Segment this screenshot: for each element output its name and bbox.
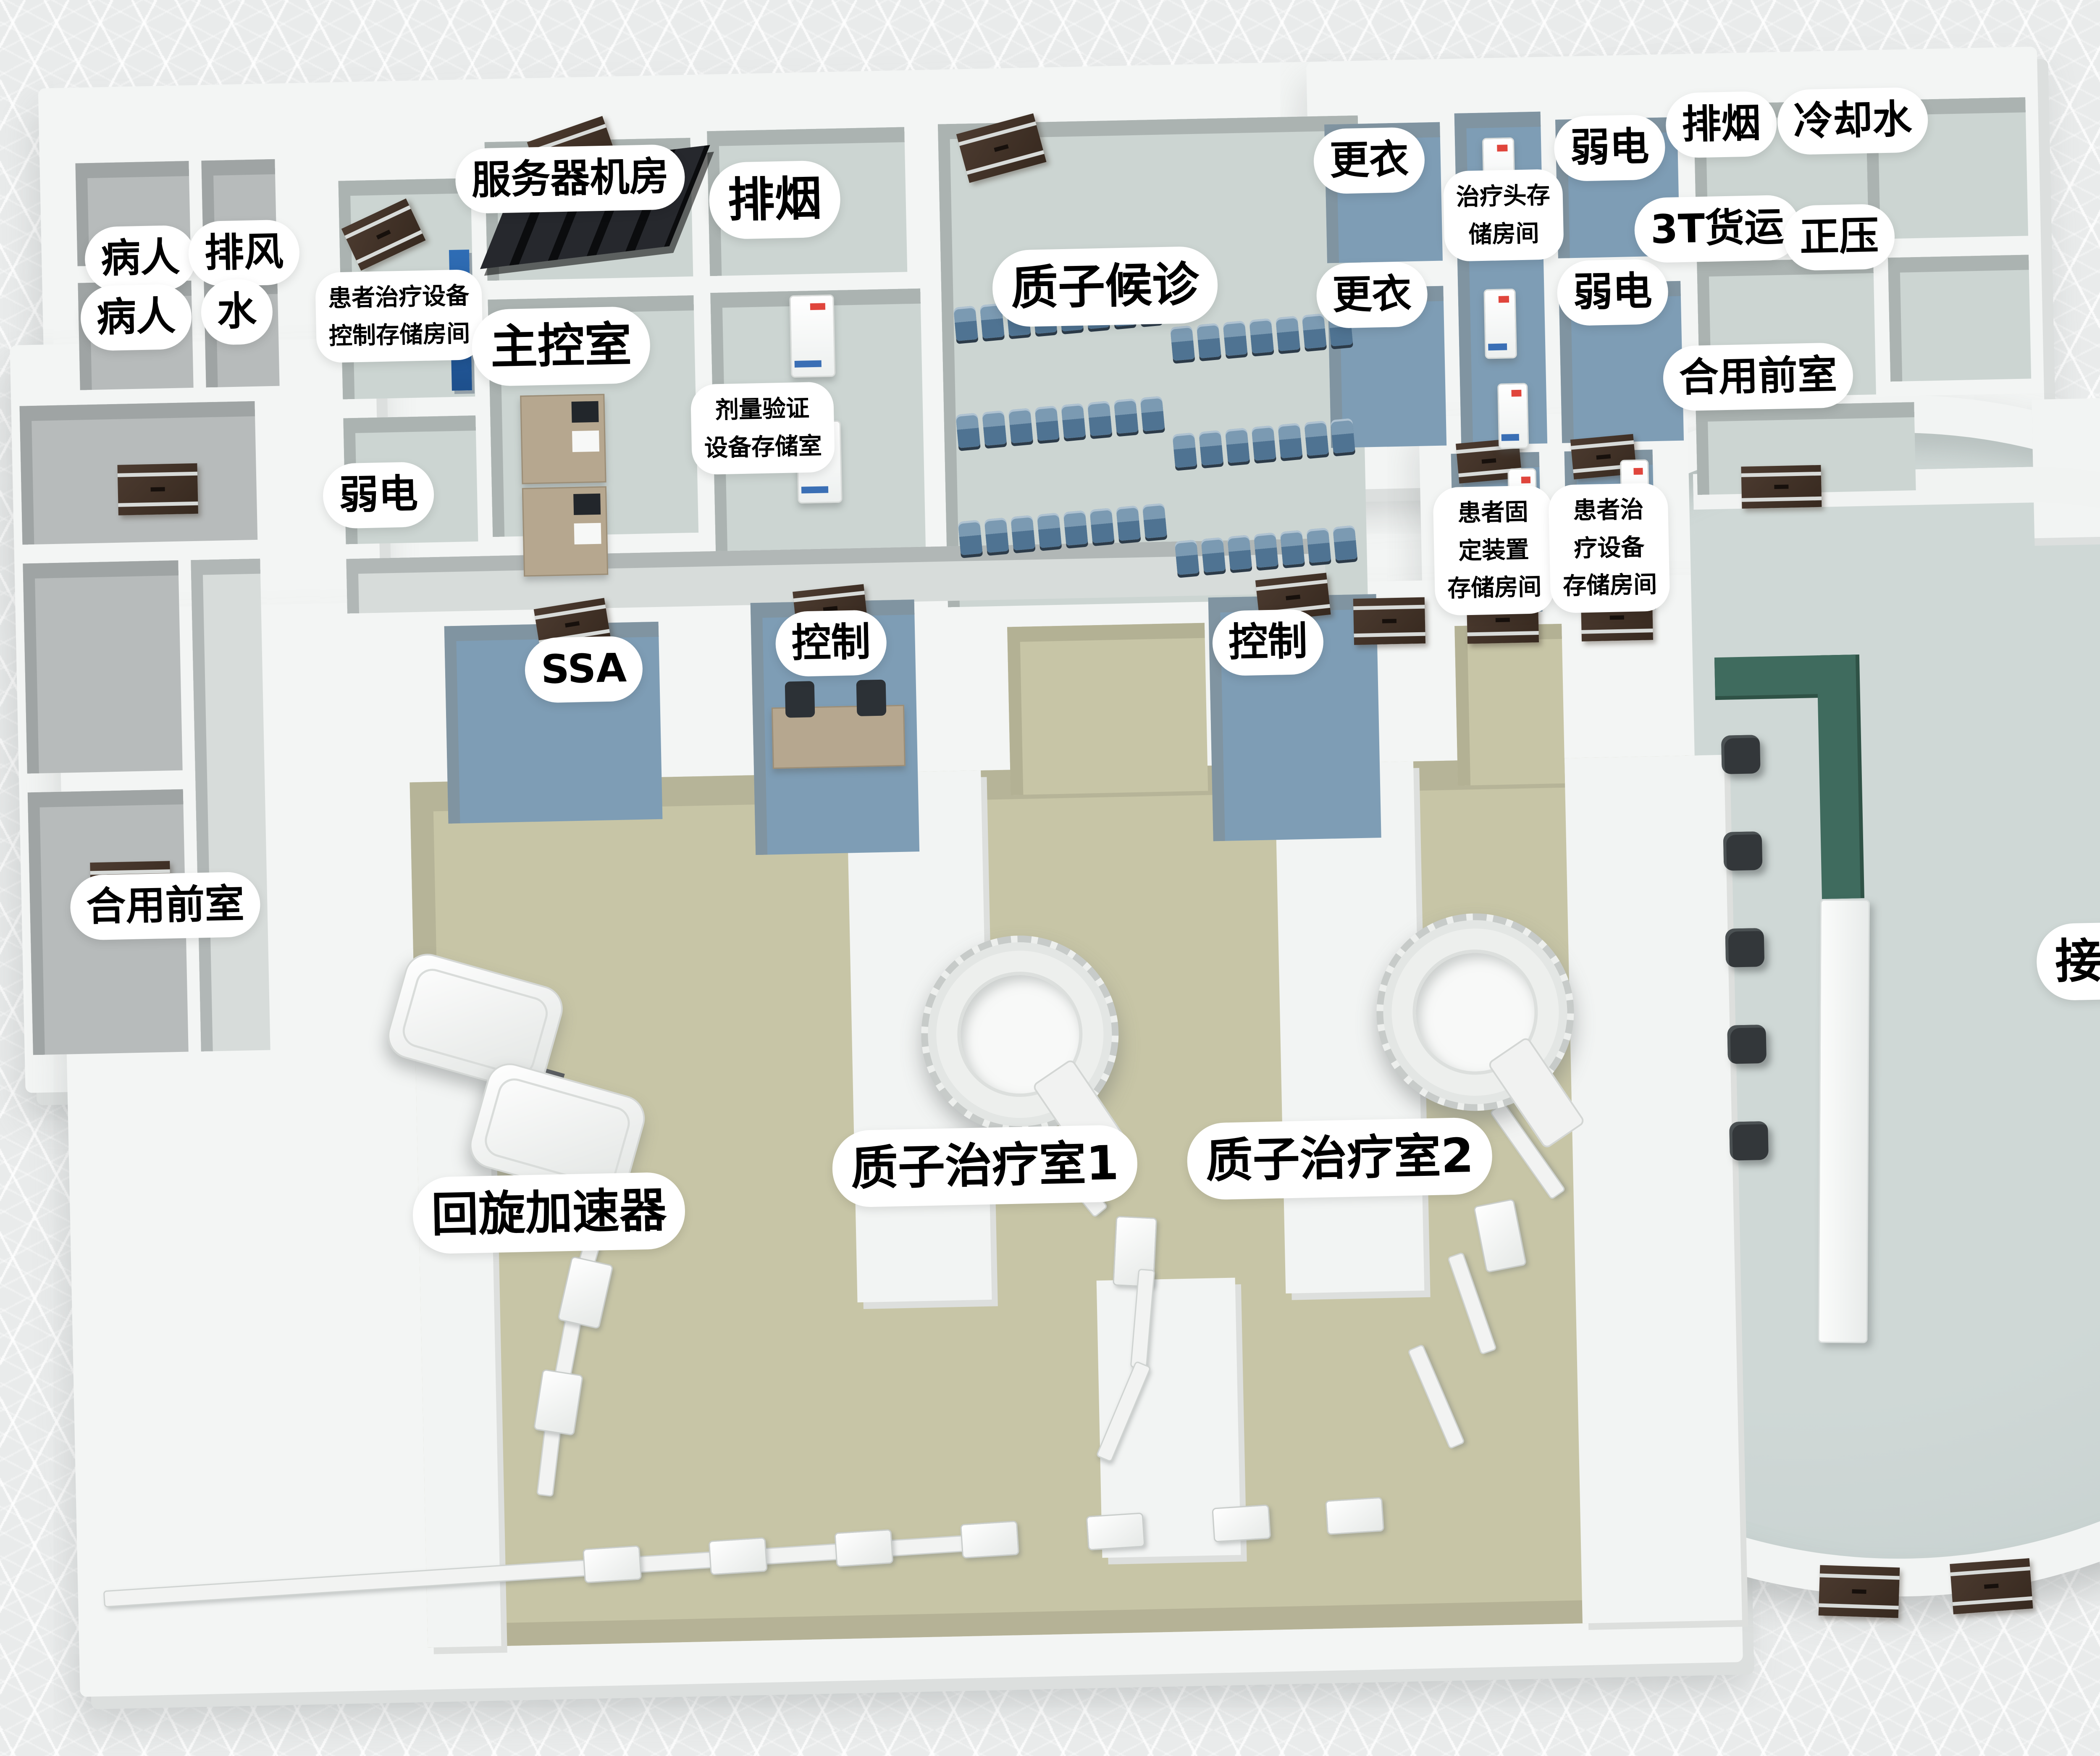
waiting-chair (1333, 525, 1357, 560)
lobby-inner-curved-wall (1693, 459, 2100, 978)
label-proton-waiting: 质子候诊 (992, 246, 1218, 327)
door (1741, 465, 1822, 509)
waiting-chair (1249, 318, 1274, 353)
beamline-segment (1086, 1512, 1145, 1551)
waiting-chair (1223, 321, 1247, 356)
label-shared-anteroom-left: 合用前室 (70, 871, 261, 940)
floor-plan-scene: 病人排风病人水患者治疗设备 控制存储房间服务器机房排烟主控室弱电剂量验证 设备存… (0, 0, 2100, 1756)
lobby-chair (1727, 1025, 1767, 1064)
waiting-chair (1304, 421, 1329, 456)
lobby-chair (1725, 928, 1764, 967)
waiting-chair (1254, 532, 1278, 568)
waiting-chair (1140, 396, 1165, 431)
beamline-segment (709, 1537, 768, 1575)
door (117, 463, 198, 515)
waiting-chair (1142, 503, 1167, 538)
lobby-chair (1721, 735, 1761, 774)
waiting-chair (1172, 433, 1197, 468)
waiting-chair (1276, 316, 1300, 351)
label-changing-2: 更衣 (1316, 261, 1428, 329)
label-control-2: 控制 (1212, 609, 1324, 676)
label-water: 水 (200, 279, 273, 345)
waiting-chair (1225, 428, 1250, 463)
label-dose-verification-storage: 剂量验证 设备存储室 (690, 381, 835, 475)
label-main-control-room: 主控室 (471, 306, 651, 387)
label-treatment-room-1: 质子治疗室1 (832, 1125, 1138, 1208)
waiting-chair (1087, 401, 1112, 436)
label-patient-device-storage: 患者治 疗设备 存储房间 (1548, 483, 1670, 613)
waiting-chair (984, 518, 1009, 553)
label-cooling-water: 冷却水 (1777, 87, 1929, 155)
waiting-chair (1170, 326, 1195, 361)
waiting-chair (1197, 323, 1221, 358)
waiting-chair (1251, 425, 1276, 460)
waiting-chair (1306, 528, 1331, 563)
label-changing-1: 更衣 (1313, 127, 1425, 194)
waiting-chair (1199, 430, 1223, 465)
room-maze-2 (1454, 624, 1565, 786)
lobby-chair (1729, 1121, 1769, 1161)
waiting-chair (1034, 405, 1059, 441)
room-maze-1 (1007, 623, 1208, 795)
equipment-cart (789, 294, 835, 378)
waiting-chair (1008, 408, 1033, 443)
waiting-chair (1037, 513, 1062, 548)
shield-wall (1564, 755, 1742, 1624)
label-weak-power-r2: 弱电 (1557, 259, 1669, 326)
label-exhaust-air: 排风 (188, 219, 300, 287)
waiting-chair (1278, 423, 1302, 458)
label-shared-anteroom-right: 合用前室 (1662, 342, 1853, 411)
label-treat-head-storage: 治疗头存 储房间 (1443, 169, 1564, 262)
beamline-segment (1325, 1497, 1384, 1535)
label-weak-power-left: 弱电 (323, 462, 435, 529)
control-desk (522, 486, 608, 576)
label-smoke-exhaust-tr: 排烟 (1665, 91, 1777, 158)
label-cargo-3t: 3T货运 (1634, 195, 1801, 263)
door (1950, 1558, 2033, 1614)
label-server-room: 服务器机房 (455, 144, 685, 214)
waiting-chair (1116, 505, 1141, 541)
control-desk (520, 394, 606, 484)
label-patient-2: 病人 (80, 284, 192, 351)
waiting-chair (1175, 539, 1200, 575)
reception-counter (1818, 899, 1870, 1343)
operator-console (772, 705, 906, 769)
label-treatment-room-2: 质子治疗室2 (1186, 1117, 1493, 1200)
waiting-chair (953, 306, 978, 341)
beamline-segment (960, 1521, 1019, 1559)
door (1819, 1565, 1900, 1618)
equipment-cart (1483, 289, 1517, 359)
label-patient-1: 病人 (84, 225, 197, 292)
waiting-chair (1063, 510, 1088, 546)
equipment-cart (1497, 383, 1529, 449)
room-positive-pressure (1888, 255, 2031, 381)
label-patient-device-ctrl-storage: 患者治疗设备 控制存储房间 (315, 269, 483, 363)
beamline-segment (1212, 1504, 1271, 1543)
label-cyclotron: 回旋加速器 (412, 1172, 686, 1254)
label-positive-pressure: 正压 (1783, 204, 1895, 271)
generated-content: 病人排风病人水患者治疗设备 控制存储房间服务器机房排烟主控室弱电剂量验证 设备存… (0, 0, 2100, 26)
waiting-chair (1114, 398, 1139, 434)
waiting-chair (1201, 537, 1226, 573)
room-left-corridor (191, 559, 270, 1051)
waiting-chair (958, 520, 983, 555)
lobby-chair (1723, 831, 1763, 871)
label-smoke-exhaust-top: 排烟 (709, 160, 841, 240)
door (1353, 597, 1425, 645)
waiting-chair (982, 410, 1007, 446)
waiting-chair (955, 413, 980, 448)
waiting-chair (1089, 508, 1114, 543)
reception-desk (1817, 655, 1861, 899)
beamline-segment (583, 1545, 642, 1583)
waiting-chair (1227, 535, 1252, 570)
waiting-chair (1302, 313, 1327, 349)
waiting-chair (1331, 418, 1355, 453)
label-weak-power-r1: 弱电 (1554, 114, 1666, 181)
waiting-chair (1011, 515, 1035, 550)
beamline-segment (834, 1529, 893, 1567)
room-left-room-2 (23, 560, 182, 774)
waiting-chair (1061, 403, 1086, 439)
label-patient-fixation-storage: 患者固 定装置 存储房间 (1433, 485, 1554, 616)
label-control-1: 控制 (775, 610, 887, 677)
label-ssa: SSA (524, 636, 643, 703)
waiting-chair (1280, 530, 1305, 565)
